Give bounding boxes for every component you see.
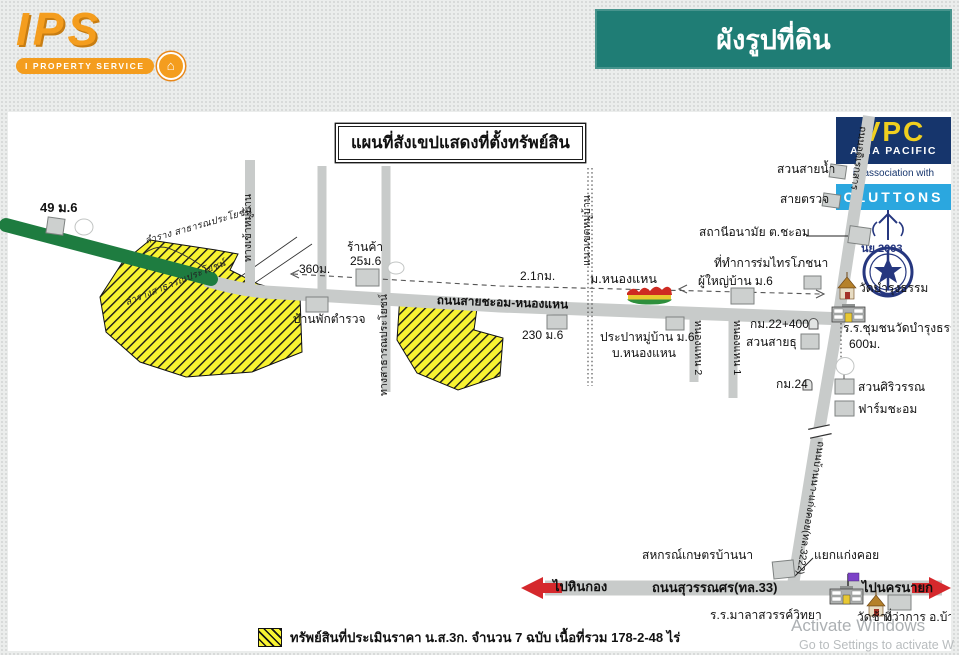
vpc-logo: VPC ASIA PACIFIC in association with CLU… bbox=[836, 117, 951, 210]
ips-brand: IPS bbox=[16, 6, 185, 52]
ips-tagline: I PROPERTY SERVICE bbox=[16, 58, 154, 74]
page: { "header": { "logo": { "brand": "IPS", … bbox=[0, 0, 959, 655]
ips-logo: IPS I PROPERTY SERVICE ⌂ bbox=[16, 6, 185, 80]
map-title: แผนที่สังเขปแสดงที่ตั้งทรัพย์สิน bbox=[338, 126, 583, 160]
vpc-association: in association with bbox=[836, 164, 951, 184]
legend-hatched-swatch bbox=[258, 628, 282, 647]
legend: ทรัพย์สินที่ประเมินราคา น.ส.3ก. จำนวน 7 … bbox=[258, 627, 680, 648]
legend-text: ทรัพย์สินที่ประเมินราคา น.ส.3ก. จำนวน 7 … bbox=[290, 627, 680, 648]
page-banner: ผังรูปที่ดิน bbox=[595, 9, 952, 69]
activate-windows-watermark: Activate Windows bbox=[791, 616, 925, 636]
activate-windows-hint: Go to Settings to activate W bbox=[799, 638, 954, 652]
vpc-arrow-icon bbox=[861, 118, 871, 128]
vpc-subtitle: ASIA PACIFIC bbox=[836, 145, 951, 157]
cluttons-brand: CLUTTONS bbox=[836, 184, 951, 210]
wrench-house-icon: ⌂ bbox=[157, 52, 185, 80]
page-banner-title: ผังรูปที่ดิน bbox=[716, 18, 830, 61]
map-panel bbox=[8, 112, 951, 651]
vpc-logo-top: VPC ASIA PACIFIC bbox=[836, 117, 951, 164]
vpc-brand: VPC bbox=[836, 118, 951, 145]
